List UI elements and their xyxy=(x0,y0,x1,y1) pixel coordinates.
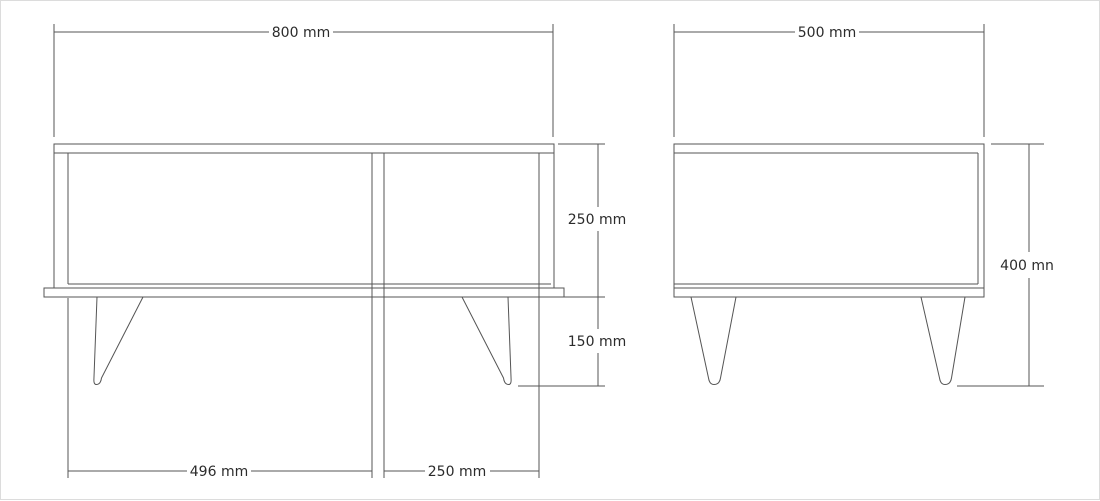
side-right-leg xyxy=(921,297,965,385)
front-left-leg xyxy=(94,297,143,385)
front-body-height-label: 250 mm xyxy=(568,212,626,228)
front-width-label: 800 mm xyxy=(272,25,330,41)
front-body-outline xyxy=(54,144,554,297)
front-width-dimension: 800 mm xyxy=(54,24,553,137)
side-body-outline xyxy=(674,144,984,297)
front-right-section-label: 250 mm xyxy=(428,464,486,480)
front-left-section-label: 496 mm xyxy=(190,464,248,480)
furniture-dimension-drawing: 800 mm 250 mm 150 mm 496 mm xyxy=(1,1,1100,501)
front-section-dimensions: 496 mm 250 mm xyxy=(68,464,539,480)
front-base-strip xyxy=(44,288,564,297)
side-height-label: 400 mn xyxy=(1000,258,1054,274)
front-view: 800 mm 250 mm 150 mm 496 mm xyxy=(44,24,626,480)
technical-drawing-canvas: 800 mm 250 mm 150 mm 496 mm xyxy=(0,0,1100,500)
side-width-label: 500 mm xyxy=(798,25,856,41)
side-width-dimension: 500 mm xyxy=(674,24,984,137)
front-leg-height-label: 150 mm xyxy=(568,334,626,350)
side-view: 500 mm 400 mn xyxy=(674,24,1054,386)
side-left-leg xyxy=(691,297,736,385)
front-right-leg xyxy=(462,297,511,385)
